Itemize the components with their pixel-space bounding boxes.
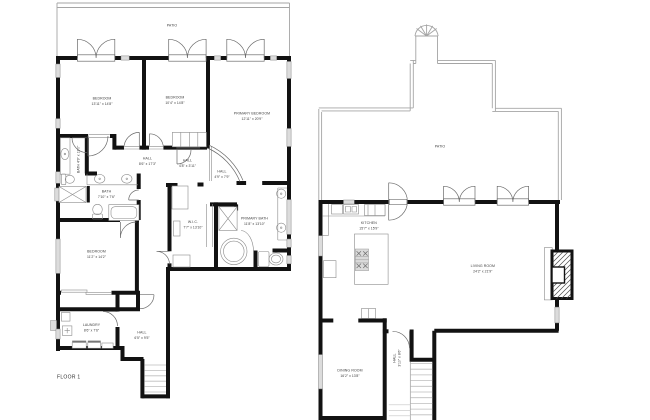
svg-text:24'2" x 21'9": 24'2" x 21'9"	[473, 270, 493, 274]
svg-text:BATH 4'9" x 13'0": BATH 4'9" x 13'0"	[77, 145, 81, 173]
svg-text:BEDROOM: BEDROOM	[166, 96, 185, 100]
svg-text:PATIO: PATIO	[435, 145, 446, 149]
svg-text:BEDROOM: BEDROOM	[93, 97, 112, 101]
svg-text:10'4" x 14'8": 10'4" x 14'8"	[165, 101, 185, 105]
svg-text:DINING ROOM: DINING ROOM	[337, 369, 362, 373]
svg-text:3'10" x 8'6": 3'10" x 8'6"	[398, 349, 402, 367]
svg-text:11'2" x 14'2": 11'2" x 14'2"	[87, 255, 107, 259]
svg-text:PATIO: PATIO	[167, 24, 178, 28]
svg-text:HALL: HALL	[217, 170, 226, 174]
svg-text:PRIMARY BEDROOM: PRIMARY BEDROOM	[234, 112, 270, 116]
svg-text:FLOOR 1: FLOOR 1	[57, 375, 81, 381]
svg-text:16'2" x 13'8": 16'2" x 13'8"	[340, 374, 360, 378]
svg-text:12'11" x 20'9": 12'11" x 20'9"	[242, 117, 264, 121]
svg-text:HALL: HALL	[183, 159, 192, 163]
svg-text:7'10" x 7'6": 7'10" x 7'6"	[98, 195, 116, 199]
svg-text:15'7" x 15'9": 15'7" x 15'9"	[359, 227, 379, 231]
svg-text:BATH: BATH	[102, 190, 112, 194]
svg-text:8'6" x 7'6": 8'6" x 7'6"	[84, 329, 100, 333]
svg-text:HALL: HALL	[393, 353, 397, 362]
svg-text:PRIMARY BATH: PRIMARY BATH	[241, 217, 268, 221]
svg-text:8'6" x 17'3": 8'6" x 17'3"	[139, 162, 157, 166]
svg-text:11'8" x 13'10": 11'8" x 13'10"	[244, 222, 266, 226]
svg-text:W.I.C.: W.I.C.	[188, 220, 198, 224]
svg-text:6'5" x 9'5": 6'5" x 9'5"	[134, 336, 150, 340]
svg-text:KITCHEN: KITCHEN	[361, 221, 377, 225]
svg-text:HALL: HALL	[143, 157, 152, 161]
svg-text:7'7" x 13'10": 7'7" x 13'10"	[183, 226, 203, 230]
svg-text:BEDROOM: BEDROOM	[87, 250, 106, 254]
svg-text:LIVING ROOM: LIVING ROOM	[471, 264, 495, 268]
svg-text:4'9" x 7'9": 4'9" x 7'9"	[214, 175, 230, 179]
svg-text:LAUNDRY: LAUNDRY	[83, 323, 101, 327]
svg-text:13'11" x 14'8": 13'11" x 14'8"	[92, 102, 114, 106]
svg-text:HALL: HALL	[137, 331, 146, 335]
svg-text:4'8" x 3'11": 4'8" x 3'11"	[179, 164, 197, 168]
